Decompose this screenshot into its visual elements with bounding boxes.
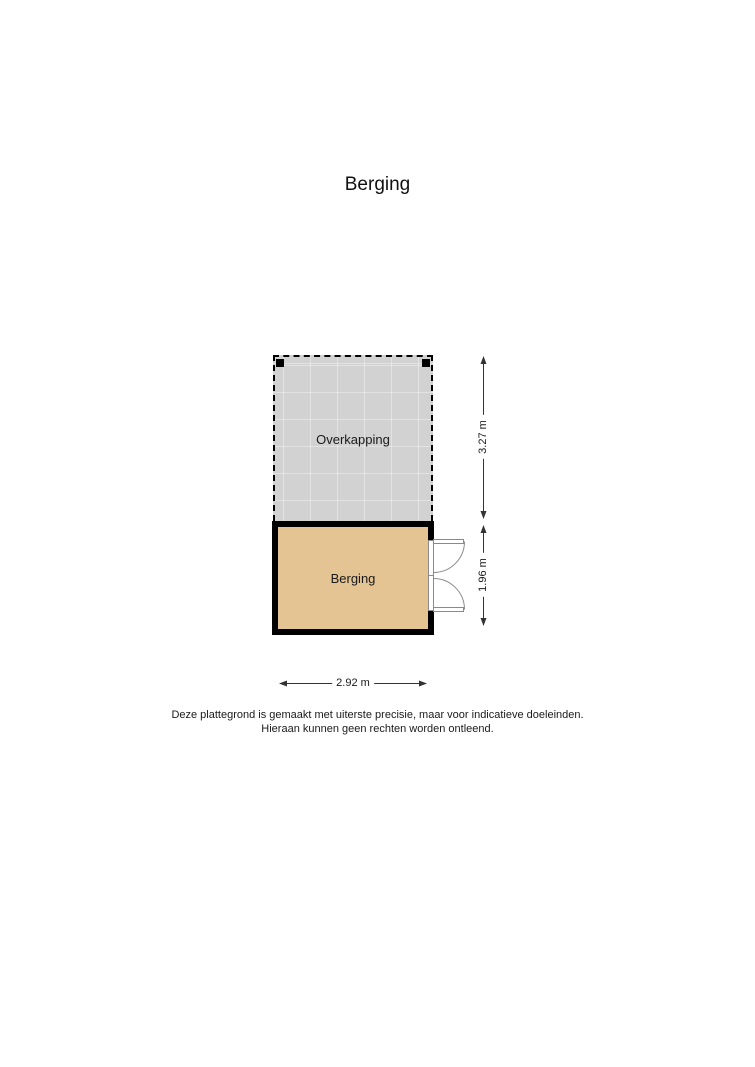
dimension-arrow-icon	[419, 681, 427, 687]
disclaimer-line-1: Deze plattegrond is gemaakt met uiterste…	[0, 708, 755, 722]
overkapping-label: Overkapping	[316, 432, 390, 447]
door-leaf	[434, 540, 464, 544]
berging-room: Berging	[272, 521, 434, 635]
corner-post-icon	[422, 359, 430, 367]
dimension-arrow-icon	[481, 618, 487, 626]
overkapping-area: Overkapping	[273, 355, 433, 521]
dimension-arrow-icon	[481, 356, 487, 364]
dimension-label-overkapping-height: 3.27 m	[477, 415, 489, 459]
dimension-arrow-icon	[481, 525, 487, 533]
disclaimer: Deze plattegrond is gemaakt met uiterste…	[0, 708, 755, 736]
dimension-label-berging-height: 1.96 m	[477, 553, 489, 597]
dimension-label-berging-width: 2.92 m	[332, 677, 374, 689]
door-leaf	[434, 608, 464, 612]
disclaimer-line-2: Hieraan kunnen geen rechten worden ontle…	[0, 722, 755, 736]
door-swing-arc	[434, 578, 465, 609]
dimension-arrow-icon	[279, 681, 287, 687]
corner-post-icon	[276, 359, 284, 367]
dimension-arrow-icon	[481, 511, 487, 519]
berging-label: Berging	[331, 571, 376, 586]
door-swing-arc	[434, 542, 465, 573]
page-title: Berging	[0, 174, 755, 196]
